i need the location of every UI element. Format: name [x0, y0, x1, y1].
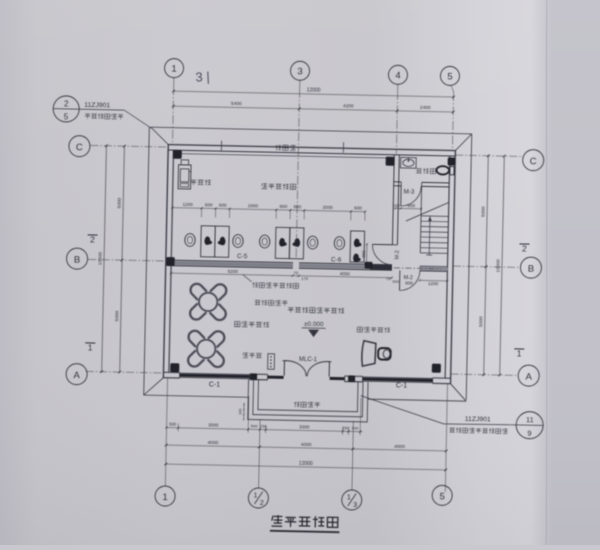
- svg-text:11ZJ901: 11ZJ901: [84, 102, 110, 110]
- svg-text:C-5: C-5: [237, 253, 248, 260]
- svg-text:900: 900: [407, 203, 415, 208]
- svg-text:C: C: [530, 156, 537, 167]
- svg-text:9: 9: [527, 429, 531, 438]
- svg-text:500: 500: [169, 421, 177, 426]
- svg-text:600: 600: [205, 202, 213, 207]
- svg-text:3: 3: [297, 66, 303, 77]
- svg-text:C-1: C-1: [396, 382, 408, 389]
- svg-text:A: A: [525, 372, 532, 383]
- svg-text:1200: 1200: [428, 281, 439, 286]
- svg-text:2: 2: [90, 234, 95, 244]
- svg-text:4200: 4200: [343, 103, 354, 109]
- svg-text:1: 1: [517, 348, 522, 358]
- svg-text:5000: 5000: [114, 310, 120, 321]
- svg-text:200: 200: [394, 204, 400, 208]
- svg-text:4000: 4000: [394, 444, 405, 450]
- svg-text:B: B: [528, 264, 535, 275]
- svg-text:1: 1: [171, 64, 177, 75]
- svg-text:3 |: 3 |: [195, 69, 210, 85]
- svg-text:A: A: [73, 370, 80, 381]
- svg-text:1: 1: [88, 342, 93, 352]
- svg-text:MLC-1: MLC-1: [299, 357, 318, 363]
- svg-text:600: 600: [294, 204, 302, 209]
- svg-text:C: C: [76, 142, 83, 153]
- svg-text:5000: 5000: [478, 316, 484, 327]
- svg-text:5000: 5000: [481, 206, 487, 217]
- svg-text:5: 5: [64, 112, 69, 121]
- svg-text:5000: 5000: [117, 197, 123, 208]
- svg-text:3300: 3300: [299, 424, 310, 429]
- svg-text:C-1: C-1: [209, 381, 221, 388]
- svg-text:250: 250: [342, 426, 348, 430]
- svg-text:5: 5: [439, 491, 445, 502]
- svg-text:3000: 3000: [208, 422, 219, 427]
- svg-text:11: 11: [526, 415, 534, 424]
- svg-text:1: 1: [347, 494, 351, 501]
- svg-text:600: 600: [219, 202, 227, 207]
- svg-text:2000: 2000: [323, 205, 334, 210]
- svg-text:12000: 12000: [307, 87, 321, 93]
- svg-text:4: 4: [395, 70, 401, 81]
- svg-text:1: 1: [253, 492, 257, 499]
- svg-text:5400: 5400: [231, 101, 242, 107]
- svg-text:1200: 1200: [183, 202, 194, 207]
- svg-text:B: B: [74, 255, 81, 266]
- svg-text:900: 900: [361, 250, 366, 258]
- svg-text:300: 300: [392, 279, 400, 284]
- svg-text:±0.000: ±0.000: [304, 321, 324, 328]
- svg-text:5200: 5200: [228, 269, 239, 274]
- svg-text:250: 250: [260, 424, 266, 428]
- svg-text:12000: 12000: [299, 461, 313, 467]
- svg-text:M-3: M-3: [404, 188, 415, 195]
- svg-text:5: 5: [447, 71, 453, 82]
- svg-text:600: 600: [354, 205, 362, 210]
- svg-text:4050: 4050: [340, 271, 351, 276]
- svg-text:M-2: M-2: [395, 250, 401, 259]
- svg-text:2: 2: [522, 243, 527, 253]
- svg-text:4000: 4000: [301, 442, 312, 448]
- svg-text:500: 500: [251, 423, 259, 428]
- svg-text:500: 500: [352, 425, 360, 430]
- svg-text:10000: 10000: [495, 259, 501, 273]
- svg-text:900: 900: [405, 281, 413, 286]
- svg-text:300: 300: [238, 409, 242, 415]
- svg-text:4000: 4000: [208, 440, 219, 446]
- svg-text:10000: 10000: [97, 252, 103, 266]
- svg-text:2: 2: [260, 500, 264, 507]
- svg-text:175: 175: [301, 276, 309, 281]
- svg-text:1: 1: [162, 492, 168, 503]
- svg-text:3: 3: [353, 502, 357, 509]
- svg-text:11ZJ901: 11ZJ901: [465, 416, 491, 424]
- svg-text:C-6: C-6: [331, 256, 342, 263]
- svg-text:2000: 2000: [248, 203, 259, 208]
- svg-text:600: 600: [280, 204, 288, 209]
- svg-text:2400: 2400: [420, 105, 431, 111]
- svg-text:2: 2: [64, 99, 69, 108]
